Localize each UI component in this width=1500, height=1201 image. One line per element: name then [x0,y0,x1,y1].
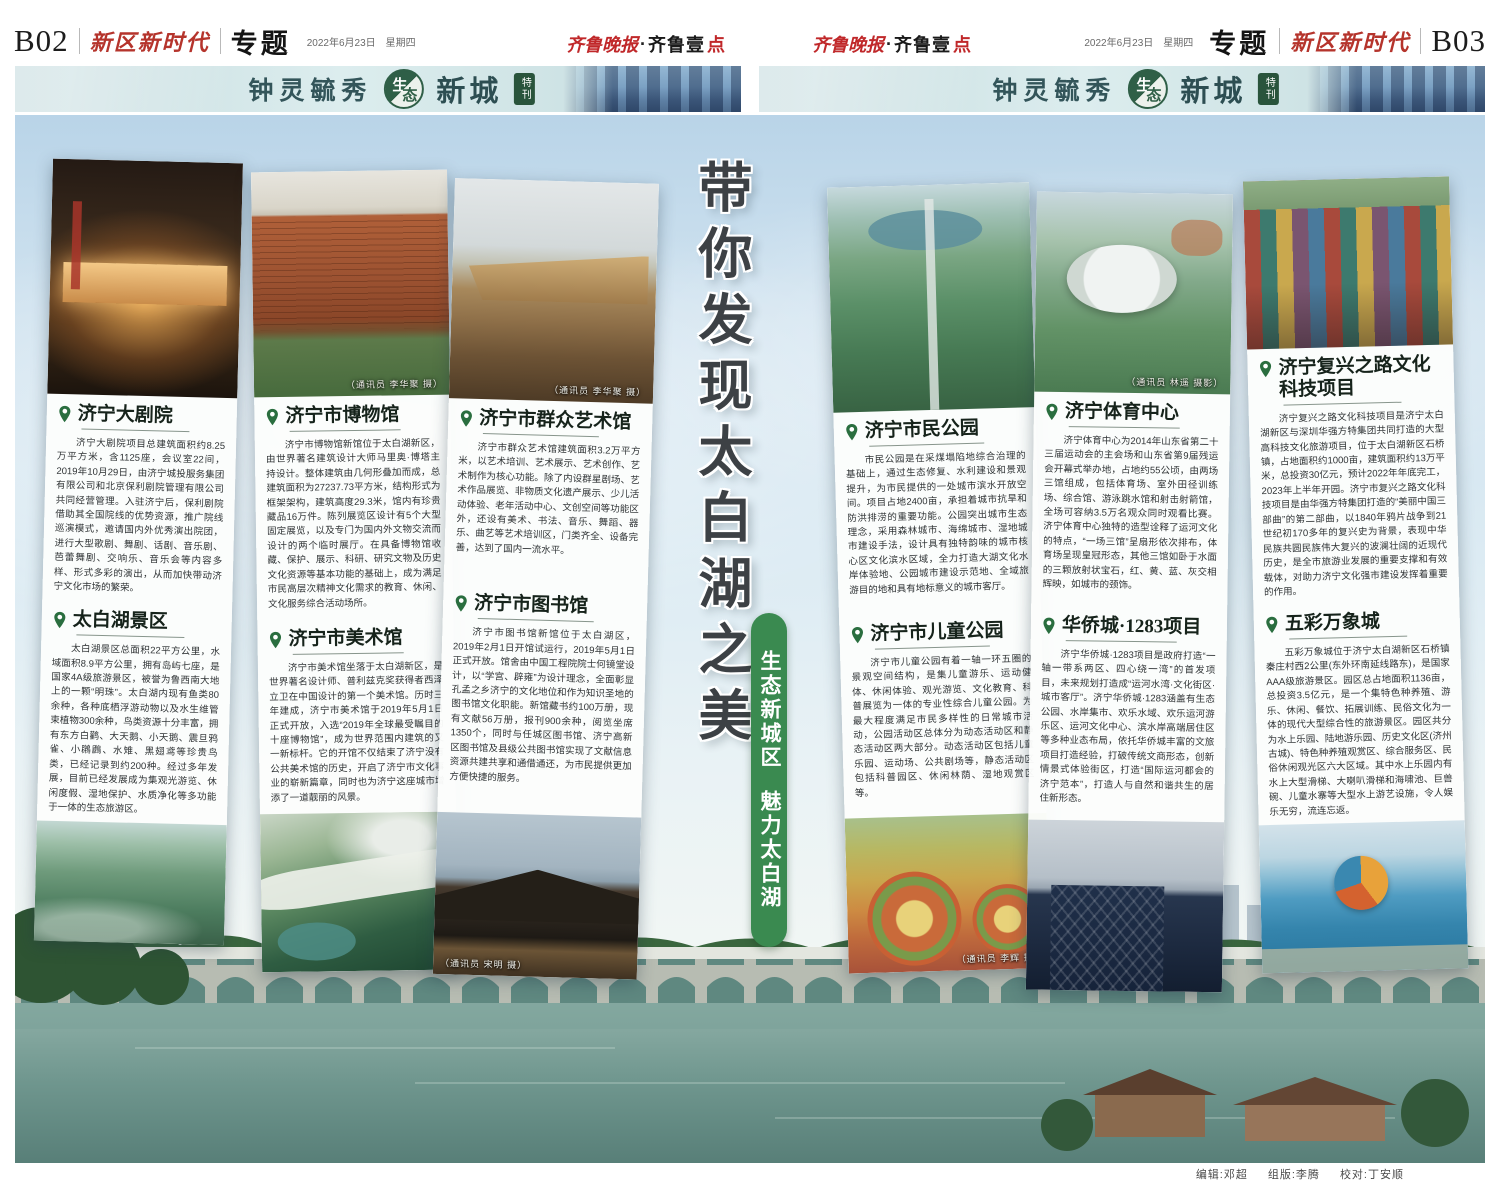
panel-mass-art: （通讯员 李华聚 摄） 济宁市群众艺术馆 济宁市群众艺术馆建筑面积3.2万平方米… [433,178,659,979]
newspaper-spread: B02 新区新时代 专题 2022年6月23日 星期四 2022年6月23日 星… [0,0,1500,1201]
article-body: 市民公园是在采煤塌陷地综合治理的基础上，通过生态修复、水利建设和景观提升，为市民… [845,449,1029,598]
divider [1279,28,1280,54]
photo-decor [1049,884,1164,991]
location-pin-icon [459,409,473,427]
eco-circle-badge: 生 态 [384,69,424,109]
oct-tower-photo [1026,820,1224,993]
grand-theater-photo [47,159,243,399]
article-body: 济宁市儿童公园有着一轴一环五圈的景观空间结构，是集儿童游乐、运动健体、休闲体验、… [851,652,1035,801]
photo-decor [468,251,649,304]
title-rule [1289,636,1407,640]
article-title: 太白湖景区 [72,610,168,634]
photo-decor [1171,220,1222,257]
weekday-text: 星期四 [386,34,416,49]
logo-black-part: 齐鲁壹 [894,31,951,57]
article-title: 济宁市美术馆 [288,627,402,650]
location-pin-icon [53,611,67,629]
article-title: 济宁市博物馆 [285,404,399,427]
title-rule [293,652,404,655]
art-museum-photo [260,812,458,973]
article-art-museum: 济宁市美术馆 济宁市美术馆坐落于太白湖新区，是世界著名设计师、普利兹克奖获得者西… [257,618,456,815]
location-pin-icon [265,408,279,426]
article-body: 济宁大剧院项目总建筑面积约8.25万平方米，含1125座，会议室22间，2019… [53,436,225,599]
location-pin-icon [845,423,859,441]
date-left: 2022年6月23日 星期四 [307,34,416,49]
logo-red-part: 齐鲁晚报 [812,31,884,57]
special-issue-badge: 特刊 [1258,73,1279,105]
panel-sports-center: （通讯员 林遥 摄影） 济宁体育中心 济宁体育中心为2014年山东省第二十三届运… [1026,192,1233,993]
location-pin-icon [1265,616,1279,634]
article-taibai-lake: 太白湖景区 太白湖景区总面积22平方公里，水域面积8.9平方公里，拥有岛屿七座，… [37,600,232,825]
article-title: 济宁体育中心 [1065,401,1179,424]
photo-caption: （通讯员 李华聚 摄） [549,383,646,399]
headline-badge: 生态新城区 魅力太白湖 [751,613,787,947]
photo-decor [260,841,458,918]
title-rule [1066,640,1177,643]
title-rule [290,429,401,432]
logo-black-part: 齐鲁壹 [648,31,705,57]
museum-photo: （通讯员 李华聚 摄） [251,170,450,398]
location-pin-icon [1258,360,1272,378]
location-pin-icon [1042,617,1056,635]
article-grand-theater: 济宁大剧院 济宁大剧院项目总建筑面积约8.25万平方米，含1125座，会议室22… [42,394,237,605]
article-sports-center: 济宁体育中心 济宁体育中心为2014年山东省第二十三届运动会的主会场和山东省第9… [1031,392,1230,609]
page-number-left: B02 [14,23,69,59]
banner-slogan-suffix: 新城 [1180,68,1246,110]
citizens-park-photo [827,182,1035,413]
credits-line: 编辑:邓超 组版:李腾 校对:丁安顺 [1196,1166,1404,1182]
article-body: 济宁华侨城·1283项目是政府打造“一轴一带系两区、四心绕一湾”的首发项目，未来… [1039,648,1215,809]
article-wanxiang-city: 五彩万象城 五彩万象城位于济宁太白湖新区石桥镇秦庄村西2公里(东外环南延线路东)… [1253,600,1464,825]
photo-caption: （通讯员 宋明 摄） [440,956,527,971]
article-title: 济宁复兴之路文化科技项目 [1278,354,1443,402]
article-title: 济宁市群众艺术馆 [479,408,632,434]
badge-line-2: 魅力太白湖 [754,790,784,910]
location-pin-icon [850,626,864,644]
logo-dot: · [886,34,892,55]
article-library: 济宁市图书馆 济宁市图书馆新馆位于太白湖区，2019年2月1日开馆试运行，201… [437,583,647,817]
date-right: 2022年6月23日 星期四 [1084,34,1193,49]
article-museum: 济宁市博物馆 济宁市博物馆新馆位于太白湖新区，由世界著名建筑设计大师马里奥·博塔… [254,395,453,621]
photo-decor [1262,945,1469,974]
special-issue-badge: 特刊 [514,73,535,105]
title-rule [478,618,594,622]
article-body: 济宁体育中心为2014年山东省第二十三届运动会的主会场和山东省第9届残运会开幕式… [1042,434,1218,595]
banner-left: 钟灵毓秀 生 态 新城 特刊 [15,66,741,112]
banner-cityscape-photo [563,66,741,112]
title-rule [483,433,599,437]
masthead-right: 新区新时代 [1290,25,1410,57]
main-headline: 带你发现太白湖之美 [679,159,757,869]
childrens-park-photo: （通讯员 李辉 摄） [845,813,1051,974]
badge-line-1: 生态新城区 [754,650,784,770]
page-header-right: 2022年6月23日 星期四 专题 新区新时代 B03 [1078,22,1486,60]
photo-decor [866,870,963,967]
section-name-right: 专题 [1209,22,1269,61]
photo-decor [1334,855,1389,910]
article-title: 五彩万象城 [1285,611,1381,635]
title-rule [76,635,184,639]
location-pin-icon [1045,403,1059,421]
article-body: 济宁市博物馆新馆位于太白湖新区，由世界著名建筑设计大师马里奥·博塔主持设计。整体… [266,437,442,613]
proofread-credit: 校对:丁安顺 [1340,1166,1404,1182]
title-rule [1069,426,1180,429]
photo-decor [63,262,227,306]
title-rule [1283,401,1401,405]
article-title: 济宁市图书馆 [474,593,589,618]
water-park-photo [1259,820,1469,973]
article-title: 济宁大剧院 [78,403,174,427]
layout-credit: 组版:李腾 [1268,1166,1320,1182]
page-number-right: B03 [1431,23,1486,59]
photo-decor [252,215,450,330]
fuxing-road-photo [1243,176,1453,349]
banner-slogan-suffix: 新城 [436,68,502,110]
section-name-left: 专题 [231,22,291,61]
article-oct-1283: 华侨城·1283项目 济宁华侨城·1283项目是政府打造“一轴一带系两区、四心绕… [1028,606,1227,823]
location-pin-icon [454,595,468,613]
article-body: 济宁市美术馆坐落于太白湖新区，是世界著名设计师、普利兹克奖获得者西泽立卫在中国设… [269,660,445,807]
sports-center-photo: （通讯员 林遥 摄影） [1034,192,1233,395]
photo-decor [433,867,641,925]
title-rule [875,645,990,649]
panel-fuxing-road: 济宁复兴之路文化科技项目 济宁复兴之路文化科技项目是济宁太白湖新区与深圳华强方特… [1243,176,1468,973]
location-pin-icon [268,631,282,649]
banner-slogan-group: 钟灵毓秀 生 态 新城 特刊 [992,66,1279,112]
photo-decor [1067,244,1178,314]
article-body: 济宁市群众艺术馆建筑面积3.2万平方米，以艺术培训、艺术展示、艺术创作、艺术制作… [455,440,640,561]
location-pin-icon [58,405,72,423]
masthead-left: 新区新时代 [90,25,210,57]
article-citizens-park: 济宁市民公园 市民公园是在采煤塌陷地综合治理的基础上，通过生态修复、水利建设和景… [833,407,1041,616]
article-body: 太白湖景区总面积22平方公里，水域面积8.9平方公里，拥有岛屿七座，是国家4A级… [48,642,220,819]
article-fuxing-road: 济宁复兴之路文化科技项目 济宁复兴之路文化科技项目是济宁太白湖新区与深圳华强方特… [1247,344,1459,605]
library-photo: （通讯员 宋明 摄） [433,812,641,980]
article-title: 济宁市民公园 [865,418,980,443]
article-body: 五彩万象城位于济宁太白湖新区石桥镇秦庄村西2公里(东外环南延线路东)，是国家AA… [1265,643,1453,821]
logo-red-part: 齐鲁晚报 [566,31,638,57]
banner-right: 钟灵毓秀 生 态 新城 特刊 [759,66,1485,112]
photo-decor [277,922,356,961]
article-mass-art: 济宁市群众艺术馆 济宁市群众艺术馆建筑面积3.2万平方米，以艺术培训、艺术展示、… [444,398,653,589]
title-rule [869,442,984,446]
weekday-text: 星期四 [1163,34,1193,49]
eco-circle-badge: 生 态 [1128,69,1168,109]
banner-cityscape-photo [1307,66,1485,112]
banner-slogan-prefix: 钟灵毓秀 [992,71,1116,107]
banner-slogan-prefix: 钟灵毓秀 [248,71,372,107]
taibai-lake-photo [34,820,227,945]
eco-char-2: 态 [402,84,417,105]
title-rule [81,428,189,432]
logo-accent-char: 点 [707,31,725,57]
newspaper-logo-right: 齐鲁晚报 · 齐鲁壹 点 [812,31,971,57]
spread-photo-area: 带你发现太白湖之美 生态新城区 魅力太白湖 济宁大剧院 济宁大剧院项目总建筑面积… [15,115,1485,1163]
panel-museum: （通讯员 李华聚 摄） 济宁市博物馆 济宁市博物馆新馆位于太白湖新区，由世界著名… [251,170,458,973]
newspaper-logo-left: 齐鲁晚报 · 齐鲁壹 点 [566,31,725,57]
date-text: 2022年6月23日 [307,34,376,49]
article-title: 华侨城·1283项目 [1062,615,1202,639]
divider [79,28,80,54]
divider [220,28,221,54]
eco-char-2: 态 [1146,84,1161,105]
article-title: 济宁市儿童公园 [870,620,1004,646]
logo-accent-char: 点 [953,31,971,57]
article-children-park: 济宁市儿童公园 济宁市儿童公园有着一轴一环五圈的景观空间结构，是集儿童游乐、运动… [839,610,1047,819]
divider [1420,28,1421,54]
date-text: 2022年6月23日 [1084,34,1153,49]
mass-art-center-photo: （通讯员 李华聚 摄） [449,178,659,404]
panel-grand-theater: 济宁大剧院 济宁大剧院项目总建筑面积约8.25万平方米，含1125座，会议室22… [34,159,243,945]
photo-caption: （通讯员 李华聚 摄） [346,377,443,391]
photo-caption: （通讯员 林遥 摄影） [1126,375,1223,389]
page-header-left: B02 新区新时代 专题 2022年6月23日 星期四 [14,22,422,60]
logo-dot: · [640,34,646,55]
article-body: 济宁市图书馆新馆位于太白湖区，2019年2月1日开馆试运行，2019年5月1日正… [449,625,635,789]
article-body: 济宁复兴之路文化科技项目是济宁太白湖新区与深圳华强方特集团共同打造的大型高科技文… [1260,408,1449,600]
panel-citizens-park: 济宁市民公园 市民公园是在采煤塌陷地综合治理的基础上，通过生态修复、水利建设和景… [827,182,1051,973]
editor-credit: 编辑:邓超 [1196,1166,1248,1182]
banner-slogan-group: 钟灵毓秀 生 态 新城 特刊 [248,66,535,112]
